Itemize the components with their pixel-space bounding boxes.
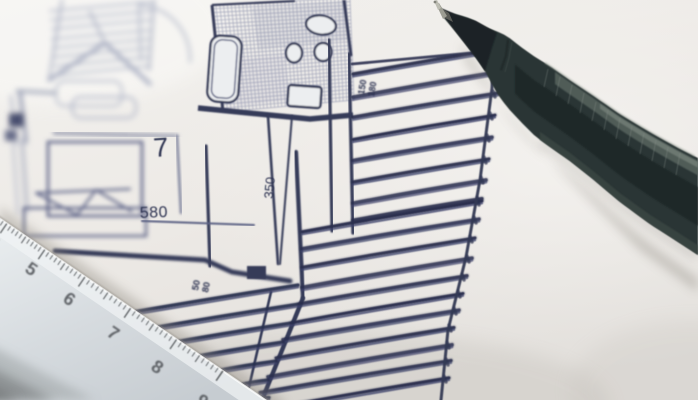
svg-text:50: 50 <box>190 279 203 292</box>
svg-text:580: 580 <box>140 204 169 222</box>
svg-text:350: 350 <box>261 176 278 199</box>
svg-text:7: 7 <box>152 132 169 163</box>
